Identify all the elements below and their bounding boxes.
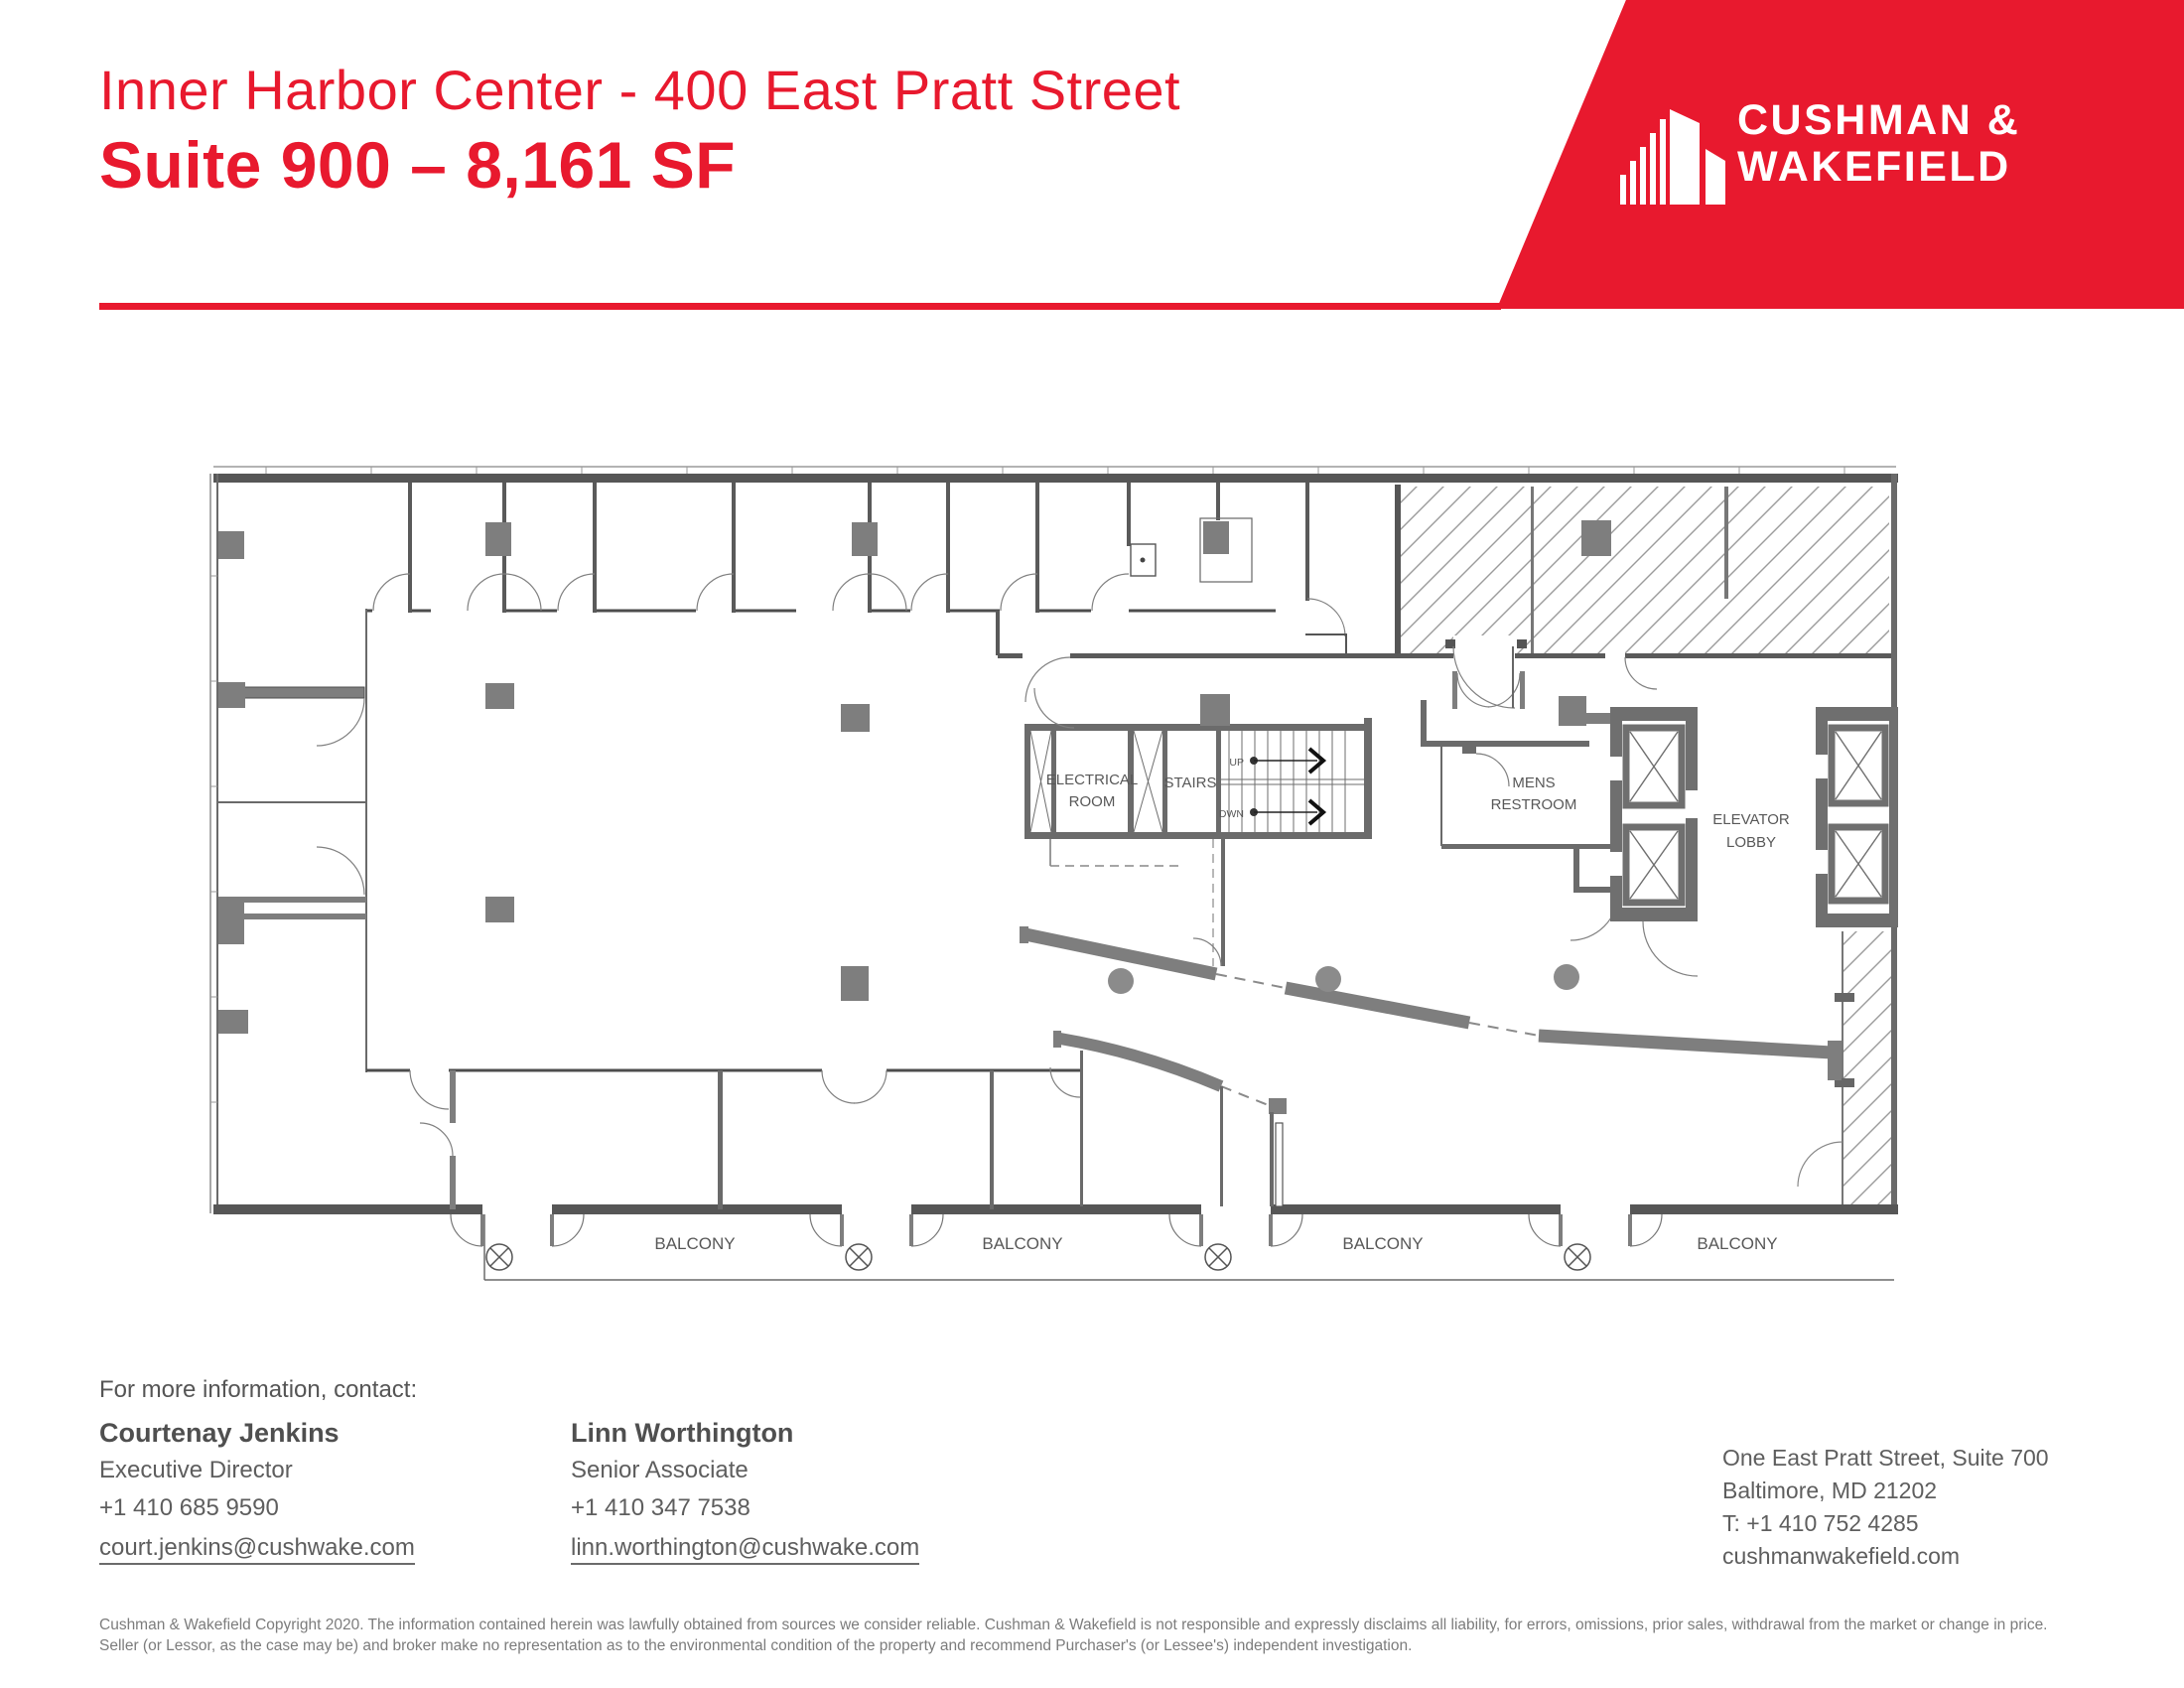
elevator-bank-left xyxy=(1610,707,1698,976)
label-stairs: STAIRS xyxy=(1163,774,1216,791)
contact-phone: +1 410 347 7538 xyxy=(571,1494,988,1522)
contact-heading: For more information, contact: xyxy=(99,1376,417,1404)
label-balcony-1: BALCONY xyxy=(654,1234,735,1253)
excluded-area-hatch-top-right xyxy=(1395,485,1889,657)
contact-title: Executive Director xyxy=(99,1457,516,1484)
contact-phone: +1 410 685 9590 xyxy=(99,1494,516,1522)
left-wing-walls xyxy=(217,609,1082,1209)
structural-columns xyxy=(218,521,1579,1034)
office-website[interactable]: cushmanwakefield.com xyxy=(1722,1540,2049,1573)
contact-email-link[interactable]: court.jenkins@cushwake.com xyxy=(99,1534,415,1565)
legal-disclaimer: Cushman & Wakefield Copyright 2020. The … xyxy=(99,1615,2075,1656)
contact-email-link[interactable]: linn.worthington@cushwake.com xyxy=(571,1534,919,1565)
contact-title: Senior Associate xyxy=(571,1457,988,1484)
stair-direction-arrows xyxy=(1250,749,1323,824)
label-up: UP xyxy=(1229,757,1244,769)
contact-card-1: Courtenay Jenkins Executive Director +1 … xyxy=(99,1418,516,1565)
office-address-line2: Baltimore, MD 21202 xyxy=(1722,1475,2049,1507)
office-address-line1: One East Pratt Street, Suite 700 xyxy=(1722,1442,2049,1475)
label-balcony-3: BALCONY xyxy=(1342,1234,1423,1253)
office-address-block: One East Pratt Street, Suite 700 Baltimo… xyxy=(1722,1442,2049,1573)
elevator-bank-right xyxy=(1816,707,1898,927)
label-mens-restroom: MENS xyxy=(1512,774,1555,791)
label-elevator-lobby: ELEVATOR xyxy=(1712,811,1790,828)
office-phone: T: +1 410 752 4285 xyxy=(1722,1507,2049,1540)
contact-card-2: Linn Worthington Senior Associate +1 410… xyxy=(571,1418,988,1565)
label-electrical-room: ELECTRICAL xyxy=(1046,772,1139,788)
contact-name: Linn Worthington xyxy=(571,1418,988,1449)
hatch-zone-door xyxy=(1445,635,1527,708)
svg-text:ROOM: ROOM xyxy=(1069,793,1116,810)
excluded-area-hatch-right-edge xyxy=(1798,931,1891,1204)
label-balcony-2: BALCONY xyxy=(982,1234,1062,1253)
svg-text:LOBBY: LOBBY xyxy=(1726,834,1776,851)
contact-name: Courtenay Jenkins xyxy=(99,1418,516,1449)
label-balcony-4: BALCONY xyxy=(1697,1234,1777,1253)
svg-text:RESTROOM: RESTROOM xyxy=(1491,796,1577,813)
angled-walls xyxy=(1020,926,1842,1206)
office-partitions-top xyxy=(366,483,1347,657)
label-down: DWN xyxy=(1219,808,1244,820)
core xyxy=(1024,688,1372,966)
